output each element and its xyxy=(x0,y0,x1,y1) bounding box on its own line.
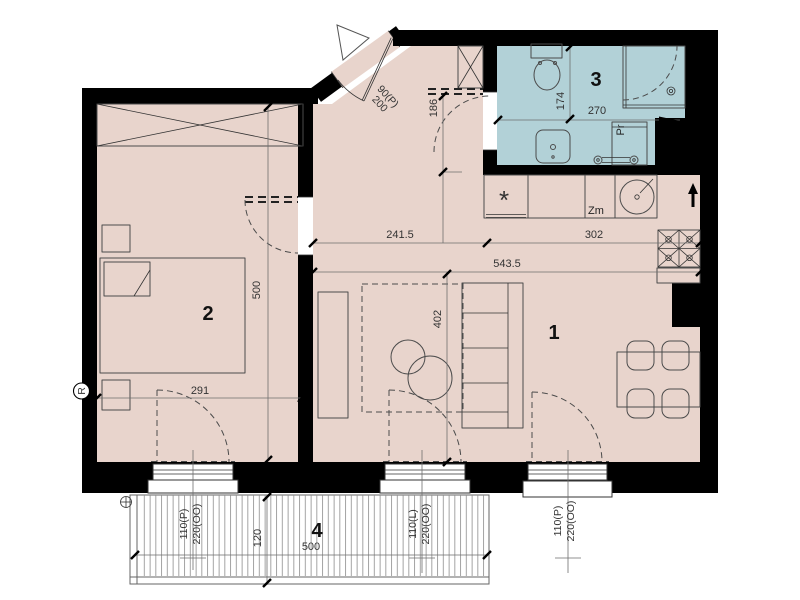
room-label-bathroom: 3 xyxy=(590,69,601,91)
window-frame xyxy=(385,464,465,480)
dim-balcony-width: 500 xyxy=(302,541,320,553)
floor-plan-page: Pr * Zm xyxy=(0,0,800,600)
wall-left xyxy=(82,88,97,493)
wall-column xyxy=(672,283,700,327)
window-living-right xyxy=(523,462,612,498)
window-frame xyxy=(528,464,607,480)
wall-bathroom-corner xyxy=(655,118,718,175)
bathroom-door-opening xyxy=(483,92,497,150)
dim-bath-height: 174 xyxy=(555,92,567,110)
room-label-living: 1 xyxy=(548,322,559,344)
room-label-balcony: 4 xyxy=(311,520,323,542)
dim-hall-depth: 186 xyxy=(428,99,440,117)
survey-point-icon xyxy=(121,497,132,508)
dim-window-bedroom-w: 110(P) xyxy=(178,509,190,540)
dim-balcony-depth: 120 xyxy=(252,529,264,547)
dishwasher-label: Zm xyxy=(588,205,604,217)
floors xyxy=(97,46,700,462)
window-sill xyxy=(380,480,470,493)
fridge-icon: * xyxy=(499,185,509,215)
thermostat-label: R xyxy=(76,387,88,395)
dim-window-living-left-w: 110(L) xyxy=(407,509,419,539)
dim-bath-width: 270 xyxy=(588,105,606,117)
window-living-left xyxy=(380,462,470,494)
dim-window-living-right-h: 220(OO) xyxy=(565,501,577,542)
thermostat-icon: R xyxy=(74,383,90,399)
dim-living-width: 543.5 xyxy=(493,258,521,270)
room-label-bedroom: 2 xyxy=(202,303,213,325)
dim-hall-width: 241.5 xyxy=(386,229,414,241)
washer-label: Pr xyxy=(615,124,627,135)
dim-bedroom-width: 291 xyxy=(191,385,209,397)
window-sill-exterior xyxy=(523,481,612,497)
wall-top-hall xyxy=(393,30,497,46)
floor-plan-svg: Pr * Zm xyxy=(0,0,800,600)
balcony xyxy=(121,495,490,584)
wall-bathroom-bottom xyxy=(497,165,655,175)
dim-window-living-right-w: 110(P) xyxy=(552,506,564,537)
shaft-icon xyxy=(658,230,700,267)
wall-top-bathroom xyxy=(490,30,718,46)
dim-window-living-left-h: 220(OO) xyxy=(420,504,432,545)
wall-bedroom-right xyxy=(298,104,313,462)
dim-kitchen-width: 302 xyxy=(585,229,603,241)
dim-bedroom-height: 500 xyxy=(251,281,263,299)
dim-window-bedroom-h: 220(OO) xyxy=(191,504,203,545)
dim-living-height: 402 xyxy=(432,310,444,328)
wall-top-bedroom xyxy=(82,88,318,104)
